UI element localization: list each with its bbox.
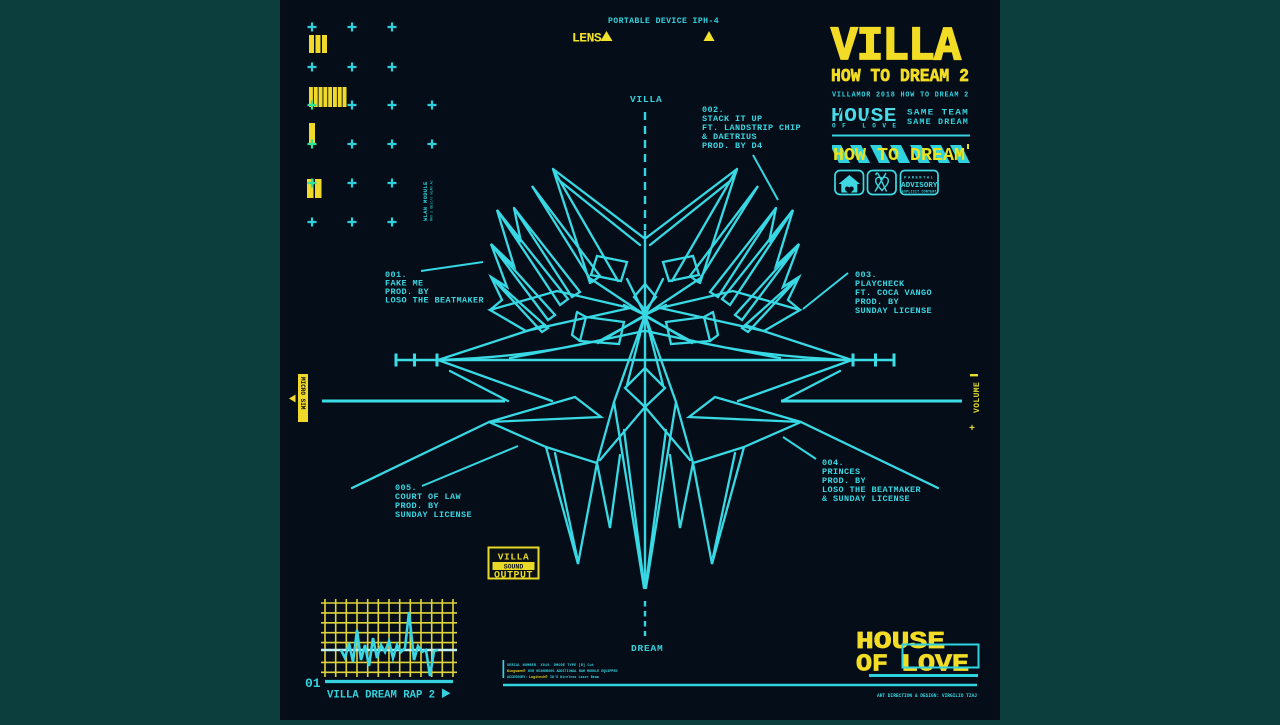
svg-text:ID'S Wireless Laser Beam: ID'S Wireless Laser Beam <box>550 675 599 680</box>
svg-text:VILLA: VILLA <box>498 552 530 563</box>
svg-text:SAME TEAM: SAME TEAM <box>907 109 969 118</box>
svg-text:ART DIRECTION & DESIGN: VIRGIL: ART DIRECTION & DESIGN: VIRGILIO TZAJ <box>877 692 977 699</box>
svg-text:MAX 2 Gbit/s WLAN AC: MAX 2 Gbit/s WLAN AC <box>430 180 435 221</box>
svg-text:SAME DREAM: SAME DREAM <box>907 118 969 127</box>
svg-text:HOW TO DREAM: HOW TO DREAM <box>833 146 965 166</box>
svg-text:VILLA DREAM RAP 2: VILLA DREAM RAP 2 <box>327 690 435 702</box>
svg-text:Kingsmen®: Kingsmen® <box>507 669 525 674</box>
svg-text:LOSO THE BEATMAKER: LOSO THE BEATMAKER <box>385 296 485 306</box>
svg-text:VILLA: VILLA <box>630 94 663 105</box>
svg-text:& SUNDAY LICENSE: & SUNDAY LICENSE <box>822 494 910 504</box>
svg-text:SERIAL NUMBER. X019. DMODE TYP: SERIAL NUMBER. X019. DMODE TYPE [R] Cut <box>507 663 594 668</box>
svg-text:ACCESSORY:: ACCESSORY: <box>507 676 527 680</box>
svg-text:WLAN MODULE: WLAN MODULE <box>422 181 429 221</box>
svg-text:LENS: LENS <box>572 31 602 46</box>
svg-text:KVR 0530DB00S ADDITIONAL RAM M: KVR 0530DB00S ADDITIONAL RAM MODULE EQUI… <box>528 670 618 674</box>
svg-text:VILLAMOR 2018 HOW TO DREAM 2: VILLAMOR 2018 HOW TO DREAM 2 <box>832 92 969 100</box>
svg-text:HOW TO DREAM 2: HOW TO DREAM 2 <box>831 66 969 87</box>
svg-text:+: + <box>969 424 975 435</box>
svg-text:PARENTAL: PARENTAL <box>904 177 934 181</box>
svg-text:EXPLICIT CONTENT: EXPLICIT CONTENT <box>902 189 937 193</box>
svg-text:OUTPUT: OUTPUT <box>494 571 533 582</box>
svg-text:PORTABLE DEVICE IPH-4: PORTABLE DEVICE IPH-4 <box>608 16 719 26</box>
svg-text:MICRO SIM: MICRO SIM <box>299 377 306 410</box>
svg-text:SOUND: SOUND <box>504 564 524 571</box>
svg-text:DREAM: DREAM <box>631 643 664 654</box>
svg-text:VOLUME: VOLUME <box>973 382 982 413</box>
svg-text:01: 01 <box>305 676 321 691</box>
svg-text:Logitech®: Logitech® <box>529 675 547 680</box>
svg-text:PROD. BY D4: PROD. BY D4 <box>702 141 763 151</box>
svg-text:SUNDAY LICENSE: SUNDAY LICENSE <box>395 510 472 520</box>
svg-text:SUNDAY LICENSE: SUNDAY LICENSE <box>855 306 932 316</box>
